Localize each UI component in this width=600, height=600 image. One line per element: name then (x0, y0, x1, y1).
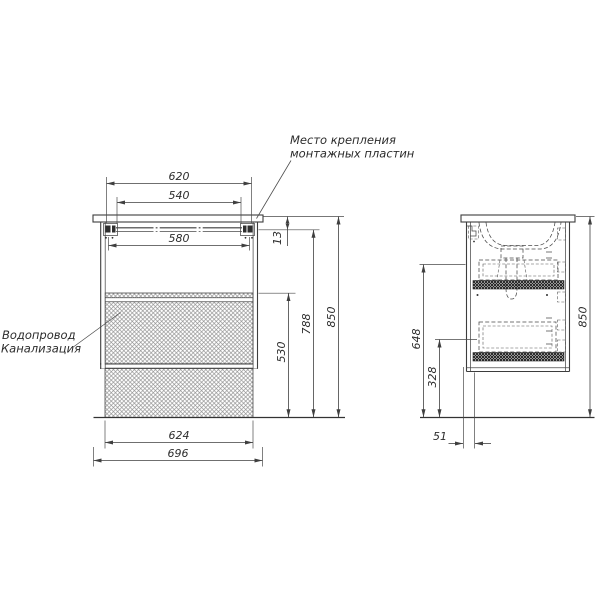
mounting-plates-text-line2: монтажных пластин (290, 147, 415, 161)
side-lower-drawer (473, 322, 564, 361)
side-fitting-dot-right (546, 294, 548, 296)
dim-front-850-label: 850 (325, 307, 338, 328)
dim-side-850-label: 850 (577, 307, 590, 328)
dim-front-13: 13 (259, 217, 345, 247)
dim-front-580: 580 (109, 232, 250, 251)
front-mounting-plate-left (104, 224, 118, 239)
dim-front-13-label: 13 (271, 231, 284, 245)
dim-front-624: 624 (105, 421, 253, 449)
dim-front-788: 788 (300, 230, 314, 417)
plumbing-text-line1: Водопровод (2, 328, 76, 342)
dim-front-696: 696 (94, 447, 263, 467)
side-countertop (461, 215, 575, 222)
side-washbasin (479, 223, 561, 250)
side-mounting-bracket (467, 226, 479, 242)
side-upper-drawer (473, 260, 564, 289)
dim-front-540-label: 540 (169, 189, 190, 202)
dim-side-328: 328 (426, 340, 477, 418)
dim-front-850: 850 (325, 217, 339, 418)
front-drawer-gap (105, 298, 253, 302)
dim-front-580-label: 580 (169, 232, 190, 245)
dim-side-328-label: 328 (426, 367, 439, 388)
dim-side-648-label: 648 (410, 329, 423, 350)
side-view (420, 215, 595, 418)
dim-side-648: 648 (410, 265, 466, 418)
dim-front-620-label: 620 (169, 170, 190, 183)
side-dimensions: 648 328 850 51 (410, 217, 595, 449)
plumbing-text-line2: Канализация (1, 342, 81, 356)
front-service-zone-hatch (105, 293, 253, 418)
front-cabinet-bottom (100, 364, 258, 368)
drawing-page: 620 540 580 13 530 788 (0, 0, 600, 600)
front-mounting-plate-right (241, 224, 255, 239)
dim-front-788-label: 788 (300, 314, 313, 335)
front-left-wall (101, 223, 106, 369)
front-countertop (93, 215, 263, 222)
mounting-plates-text-line1: Место крепления (290, 133, 396, 147)
dim-side-51-label: 51 (433, 430, 447, 443)
dim-front-624-label: 624 (169, 429, 190, 442)
mounting-plates-leader-line (257, 161, 292, 219)
technical-drawing: 620 540 580 13 530 788 (0, 0, 600, 600)
side-fitting-dot-left (477, 294, 479, 296)
side-carcass (467, 223, 570, 372)
dim-front-530: 530 (259, 293, 296, 417)
dim-front-530-label: 530 (275, 342, 288, 363)
dim-front-696-label: 696 (168, 447, 189, 460)
dim-side-51: 51 (433, 367, 491, 449)
front-right-wall (253, 223, 257, 369)
dim-side-850: 850 (576, 217, 595, 418)
side-drain-siphon (497, 246, 527, 299)
annotation-mounting-plates: Место крепления монтажных пластин (257, 133, 415, 219)
